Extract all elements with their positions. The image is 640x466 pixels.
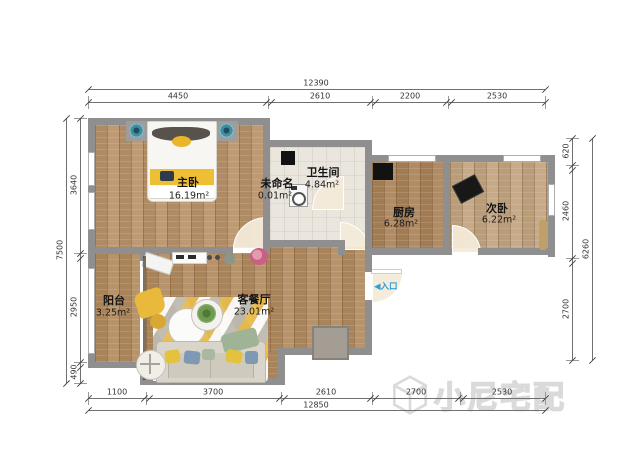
bed-tray bbox=[160, 171, 174, 181]
dim-line bbox=[88, 102, 545, 103]
dim-total-top: 12390 bbox=[303, 79, 328, 88]
dim-seg: 2950 bbox=[70, 297, 79, 317]
dim-line bbox=[88, 89, 545, 90]
pillow bbox=[245, 351, 258, 364]
wall[interactable] bbox=[443, 162, 450, 255]
dim-seg: 2610 bbox=[310, 92, 330, 101]
room-area-kitchen: 6.28m² bbox=[384, 219, 418, 230]
wall[interactable] bbox=[365, 248, 372, 272]
toilet-icon[interactable] bbox=[281, 151, 295, 165]
wall[interactable] bbox=[338, 240, 345, 255]
dim-seg: 3700 bbox=[203, 388, 223, 397]
dim-tick bbox=[589, 357, 596, 364]
window[interactable] bbox=[88, 152, 95, 186]
console-drawer bbox=[188, 255, 196, 259]
entrance-label: ◀入口 bbox=[374, 280, 398, 292]
speaker-icon bbox=[215, 255, 220, 260]
console-drawer bbox=[176, 255, 184, 259]
pillow bbox=[164, 349, 181, 364]
room-label-bathroom: 卫生间 bbox=[307, 164, 340, 180]
room-area-second-bedroom: 6.22m² bbox=[482, 215, 516, 226]
dim-seg: 2530 bbox=[487, 92, 507, 101]
wall[interactable] bbox=[365, 300, 372, 355]
window[interactable] bbox=[88, 268, 95, 354]
dim-total-right: 6260 bbox=[582, 239, 591, 259]
floor-lamp[interactable] bbox=[136, 350, 166, 380]
room-area-balcony: 3.25m² bbox=[96, 308, 130, 319]
dim-seg: 2460 bbox=[562, 201, 571, 221]
dim-tick bbox=[542, 86, 549, 93]
room-label-unnamed: 未命名 bbox=[261, 175, 294, 191]
dim-line bbox=[66, 118, 67, 383]
dim-total-bottom: 12850 bbox=[303, 401, 328, 410]
wall[interactable] bbox=[263, 240, 338, 247]
dim-seg: 2700 bbox=[406, 388, 426, 397]
bed-cushion bbox=[172, 136, 191, 147]
dim-line bbox=[592, 138, 593, 360]
washing-machine-drum bbox=[292, 192, 306, 206]
stove-icon[interactable] bbox=[373, 163, 393, 180]
dim-seg: 2200 bbox=[400, 92, 420, 101]
window[interactable] bbox=[548, 184, 555, 216]
stool[interactable] bbox=[150, 314, 166, 329]
room-label-living-dining: 客餐厅 bbox=[238, 291, 271, 307]
dim-seg: 2610 bbox=[316, 388, 336, 397]
bedside-lamp-icon bbox=[129, 123, 144, 138]
wall[interactable] bbox=[268, 140, 370, 147]
shoe-cabinet[interactable] bbox=[312, 326, 349, 360]
entrance-text: 入口 bbox=[381, 282, 398, 292]
speaker-icon bbox=[207, 255, 212, 260]
pillow bbox=[183, 350, 200, 365]
dim-seg: 2530 bbox=[492, 388, 512, 397]
room-area-unnamed: 0.01m² bbox=[258, 191, 292, 202]
room-area-living-dining: 23.01m² bbox=[234, 307, 274, 318]
pillow bbox=[225, 349, 243, 365]
small-plant bbox=[224, 253, 235, 265]
table-plant bbox=[197, 304, 216, 323]
floor-lamp-cross bbox=[140, 363, 160, 365]
wall[interactable] bbox=[88, 247, 233, 254]
dim-seg: 4450 bbox=[168, 92, 188, 101]
dim-seg: 2700 bbox=[562, 299, 571, 319]
dim-tick bbox=[63, 380, 70, 387]
bedding-roll bbox=[539, 220, 547, 250]
wall[interactable] bbox=[372, 248, 452, 255]
entrance-door-leaf[interactable] bbox=[372, 270, 401, 273]
dim-line bbox=[88, 410, 545, 411]
dim-seg: 490 bbox=[70, 364, 79, 379]
room-area-bathroom: 4.84m² bbox=[305, 180, 339, 191]
dim-seg: 1100 bbox=[107, 388, 127, 397]
dim-seg: 620 bbox=[562, 143, 571, 158]
bedside-lamp-icon bbox=[219, 123, 234, 138]
dim-total-left: 7500 bbox=[56, 240, 65, 260]
room-area-master-bedroom: 16.19m² bbox=[169, 191, 209, 202]
window[interactable] bbox=[388, 155, 436, 162]
room-label-balcony: 阳台 bbox=[103, 292, 125, 308]
room-label-master-bedroom: 主卧 bbox=[177, 174, 199, 190]
window[interactable] bbox=[88, 192, 95, 230]
window[interactable] bbox=[503, 155, 541, 162]
flower-vase[interactable] bbox=[250, 248, 268, 265]
floor-plan: 主卧 16.19m² 未命名 0.01m² 卫生间 4.84m² 厨房 6.28… bbox=[0, 0, 640, 466]
pillow bbox=[202, 349, 215, 360]
dim-seg: 3640 bbox=[70, 175, 79, 195]
dim-line bbox=[88, 398, 545, 399]
